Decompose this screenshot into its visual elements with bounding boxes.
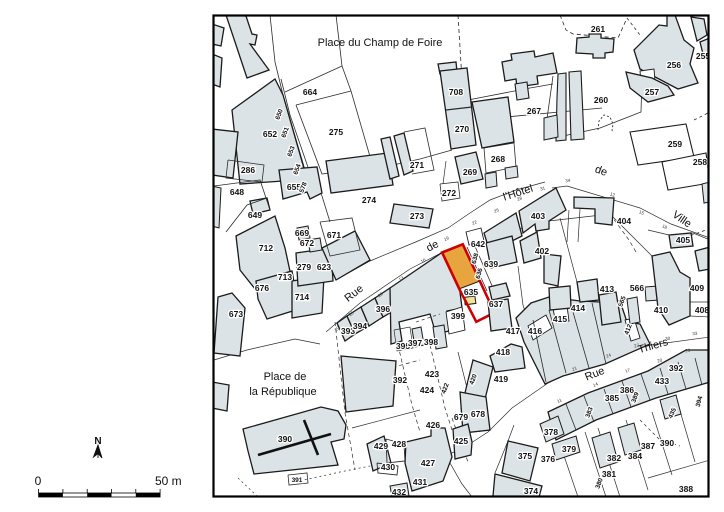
svg-text:374: 374 bbox=[524, 486, 538, 496]
svg-text:423: 423 bbox=[425, 369, 439, 379]
svg-text:398: 398 bbox=[424, 337, 438, 347]
svg-text:417: 417 bbox=[506, 326, 520, 336]
svg-text:402: 402 bbox=[535, 246, 549, 256]
svg-text:637: 637 bbox=[489, 299, 503, 309]
svg-text:272: 272 bbox=[442, 188, 456, 198]
svg-text:712: 712 bbox=[259, 243, 273, 253]
svg-text:403: 403 bbox=[531, 211, 545, 221]
svg-text:424: 424 bbox=[420, 385, 434, 395]
svg-text:50 m: 50 m bbox=[155, 474, 182, 488]
svg-text:270: 270 bbox=[455, 124, 469, 134]
svg-text:652: 652 bbox=[263, 129, 277, 139]
svg-text:713: 713 bbox=[278, 272, 292, 282]
svg-text:260: 260 bbox=[594, 95, 608, 105]
svg-text:679: 679 bbox=[454, 412, 468, 422]
svg-text:669: 669 bbox=[295, 228, 309, 238]
svg-text:384: 384 bbox=[628, 451, 642, 461]
svg-text:259: 259 bbox=[668, 139, 682, 149]
svg-text:404: 404 bbox=[617, 216, 631, 226]
svg-text:271: 271 bbox=[410, 160, 424, 170]
svg-text:279: 279 bbox=[297, 262, 311, 272]
svg-text:286: 286 bbox=[241, 165, 255, 175]
svg-text:Place de: Place de bbox=[264, 371, 307, 383]
svg-text:413: 413 bbox=[600, 284, 614, 294]
svg-text:414: 414 bbox=[571, 303, 585, 313]
svg-text:648: 648 bbox=[230, 187, 244, 197]
svg-text:405: 405 bbox=[676, 235, 690, 245]
svg-text:671: 671 bbox=[327, 230, 341, 240]
svg-text:676: 676 bbox=[255, 283, 269, 293]
svg-text:388: 388 bbox=[679, 484, 693, 494]
svg-text:256: 256 bbox=[667, 60, 681, 70]
svg-text:la République: la République bbox=[249, 386, 316, 398]
svg-text:396: 396 bbox=[376, 304, 390, 314]
svg-text:275: 275 bbox=[329, 127, 343, 137]
svg-text:415: 415 bbox=[553, 314, 567, 324]
svg-text:425: 425 bbox=[454, 436, 468, 446]
svg-text:379: 379 bbox=[562, 444, 576, 454]
svg-text:385: 385 bbox=[605, 393, 619, 403]
svg-text:381: 381 bbox=[602, 469, 616, 479]
svg-text:708: 708 bbox=[449, 87, 463, 97]
svg-text:0: 0 bbox=[35, 474, 42, 488]
svg-text:673: 673 bbox=[229, 309, 243, 319]
svg-text:386: 386 bbox=[620, 385, 634, 395]
svg-text:376: 376 bbox=[541, 454, 555, 464]
svg-text:419: 419 bbox=[494, 374, 508, 384]
svg-text:642: 642 bbox=[471, 239, 485, 249]
svg-text:639: 639 bbox=[484, 259, 498, 269]
svg-text:397: 397 bbox=[408, 338, 422, 348]
svg-text:267: 267 bbox=[527, 106, 541, 116]
svg-text:430: 430 bbox=[381, 462, 395, 472]
svg-text:375: 375 bbox=[518, 451, 532, 461]
svg-text:426: 426 bbox=[426, 420, 440, 430]
svg-text:635: 635 bbox=[464, 287, 478, 297]
svg-text:566: 566 bbox=[630, 283, 644, 293]
svg-text:410: 410 bbox=[654, 305, 668, 315]
svg-text:258: 258 bbox=[693, 157, 707, 167]
svg-text:392: 392 bbox=[393, 375, 407, 385]
svg-text:378: 378 bbox=[544, 427, 558, 437]
svg-text:274: 274 bbox=[362, 195, 376, 205]
svg-text:649: 649 bbox=[248, 210, 262, 220]
svg-text:269: 269 bbox=[463, 167, 477, 177]
svg-text:664: 664 bbox=[303, 87, 317, 97]
svg-text:387: 387 bbox=[641, 441, 655, 451]
svg-text:678: 678 bbox=[471, 409, 485, 419]
svg-text:390: 390 bbox=[278, 434, 292, 444]
svg-text:418: 418 bbox=[496, 347, 510, 357]
svg-text:433: 433 bbox=[655, 376, 669, 386]
svg-text:428: 428 bbox=[392, 439, 406, 449]
svg-text:Place du Champ de Foire: Place du Champ de Foire bbox=[318, 37, 443, 49]
svg-text:268: 268 bbox=[491, 154, 505, 164]
svg-text:429: 429 bbox=[374, 441, 388, 451]
svg-text:672: 672 bbox=[300, 238, 314, 248]
svg-text:408: 408 bbox=[695, 305, 709, 315]
svg-text:392: 392 bbox=[669, 363, 683, 373]
svg-text:409: 409 bbox=[690, 283, 704, 293]
svg-text:390: 390 bbox=[660, 438, 674, 448]
svg-text:399: 399 bbox=[451, 311, 465, 321]
svg-text:714: 714 bbox=[295, 292, 309, 302]
svg-text:394: 394 bbox=[353, 321, 367, 331]
svg-text:391: 391 bbox=[292, 477, 303, 484]
svg-text:427: 427 bbox=[421, 458, 435, 468]
svg-text:261: 261 bbox=[591, 24, 605, 34]
svg-text:382: 382 bbox=[607, 453, 621, 463]
svg-text:257: 257 bbox=[645, 87, 659, 97]
svg-text:273: 273 bbox=[410, 211, 424, 221]
svg-text:431: 431 bbox=[413, 477, 427, 487]
svg-text:416: 416 bbox=[528, 326, 542, 336]
svg-text:623: 623 bbox=[317, 262, 331, 272]
